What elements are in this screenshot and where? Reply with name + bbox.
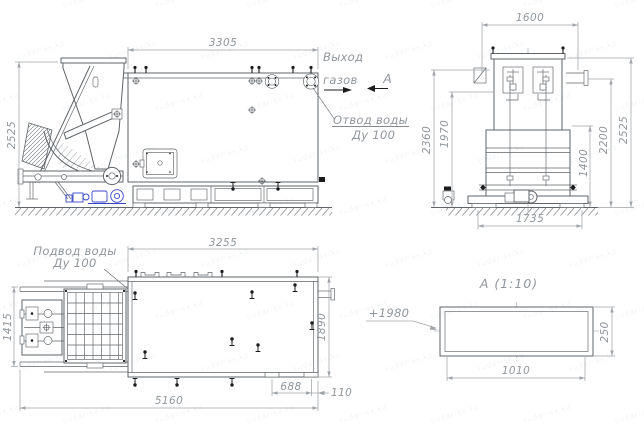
inspection-hatch <box>140 149 177 178</box>
dim-detail-width: 1010 <box>502 365 530 377</box>
drawing-canvas: 3305 2525 Выход газов А Отвод воды Ду 10… <box>0 0 644 430</box>
dim-side-length: 3305 <box>209 37 237 49</box>
machine-body-side <box>122 66 325 182</box>
dim-plan-feet: 688 <box>280 381 301 393</box>
gas-flow-arrow-icon <box>343 87 352 93</box>
dim-front-left-outer: 2360 <box>421 126 433 154</box>
view-direction-arrow-icon <box>367 85 375 92</box>
view-arrow-label: А <box>382 71 393 86</box>
dim-side-height: 2525 <box>6 121 18 149</box>
detail-title: А (1:10) <box>479 276 538 291</box>
duct-section-outline <box>440 307 593 356</box>
pipe-stub <box>331 289 335 301</box>
dim-front-left-inner: 1970 <box>439 120 451 148</box>
top-fittings <box>133 66 312 73</box>
plan-labels: Подвод воды Ду 100 <box>33 244 128 289</box>
grate-panel <box>22 123 52 169</box>
front-view: 1600 2360 1970 1400 2200 2525 1735 <box>421 12 634 229</box>
dim-front-right-mid: 2200 <box>598 126 610 154</box>
hopper-grate-plan <box>64 284 126 368</box>
leader-label: +1980 <box>369 306 409 320</box>
skip-hopper <box>18 58 126 199</box>
mounting-foot <box>304 373 318 378</box>
dim-plan-bottom: 5160 <box>155 395 183 407</box>
machine-body-front <box>443 46 588 207</box>
mounting-foot <box>265 373 279 378</box>
label-gas-outlet-line1: Выход <box>323 50 363 64</box>
label-water-supply-line2: Ду 100 <box>52 256 96 270</box>
label-water-drain-line2: Ду 100 <box>351 128 395 142</box>
dim-front-right-inner: 1400 <box>578 149 590 177</box>
dim-plan-top: 3255 <box>209 237 237 249</box>
detail-a-view: А (1:10) +1980 1010 250 <box>366 276 615 381</box>
dim-plan-left: 1415 <box>2 313 14 341</box>
detail-leader: +1980 <box>366 306 437 330</box>
label-water-drain-line1: Отвод воды <box>333 113 408 127</box>
pivot-wheel <box>103 167 120 184</box>
dim-front-bottom: 1735 <box>516 213 544 225</box>
dim-plan-edge: 110 <box>331 387 352 399</box>
technical-drawing-page: 3305 2525 Выход газов А Отвод воды Ду 10… <box>0 0 644 430</box>
ground-hatch <box>15 208 332 216</box>
dim-detail-height: 250 <box>599 321 611 342</box>
dim-plan-right: 1890 <box>316 313 328 341</box>
dim-front-top: 1600 <box>516 12 544 24</box>
pump-motor-unit <box>66 190 126 204</box>
dim-arrow-icon <box>318 391 325 395</box>
dim-front-right-outer: 2525 <box>618 116 630 144</box>
side-view: 3305 2525 Выход газов А Отвод воды Ду 10… <box>6 37 409 216</box>
label-gas-outlet-line2: газов <box>323 73 358 87</box>
machine-body-plan <box>128 270 335 387</box>
side-labels: Выход газов А Отвод воды Ду 100 <box>313 50 409 142</box>
plan-view: Подвод воды Ду 100 3255 1415 1890 5160 <box>2 237 352 411</box>
